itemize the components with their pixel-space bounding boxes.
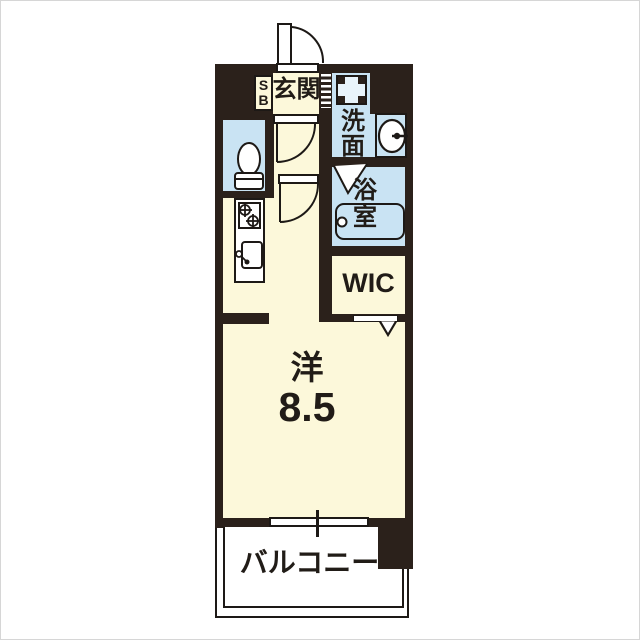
- kitchen-tap-icon: [236, 251, 250, 265]
- washroom-label: 洗 面: [340, 109, 366, 159]
- shoe-box-label-b: B: [254, 93, 273, 108]
- main-room-type-label: 洋: [216, 351, 398, 384]
- closet-open-arrow-icon: [380, 322, 396, 336]
- vanity-basin-icon: [379, 120, 408, 152]
- washroom-label-2: 面: [340, 134, 366, 159]
- balcony-label: バルコニー: [215, 549, 404, 577]
- door-swing-icon: [280, 184, 318, 222]
- wic-label: WIC: [332, 270, 405, 297]
- genkan-label: 玄関: [272, 78, 321, 102]
- main-room-size-label: 8.5: [216, 387, 398, 428]
- bathroom-label: 浴 室: [352, 177, 378, 231]
- bathroom-label-1: 浴: [352, 177, 378, 204]
- floor-plan-canvas: S B 玄関 洗 面 浴 室 WIC 洋 8.5 バルコニー: [0, 0, 640, 640]
- door-swing-icon: [277, 124, 315, 162]
- door-swing-icon: [292, 27, 323, 63]
- shoe-box-label: S B: [254, 78, 273, 108]
- bathtub-drain-icon: [338, 218, 347, 227]
- bathroom-label-2: 室: [352, 204, 378, 231]
- toilet-icon: [235, 143, 263, 189]
- gas-stove-burners: [238, 203, 260, 228]
- shoe-box-label-s: S: [254, 78, 273, 93]
- washroom-label-1: 洗: [340, 109, 366, 134]
